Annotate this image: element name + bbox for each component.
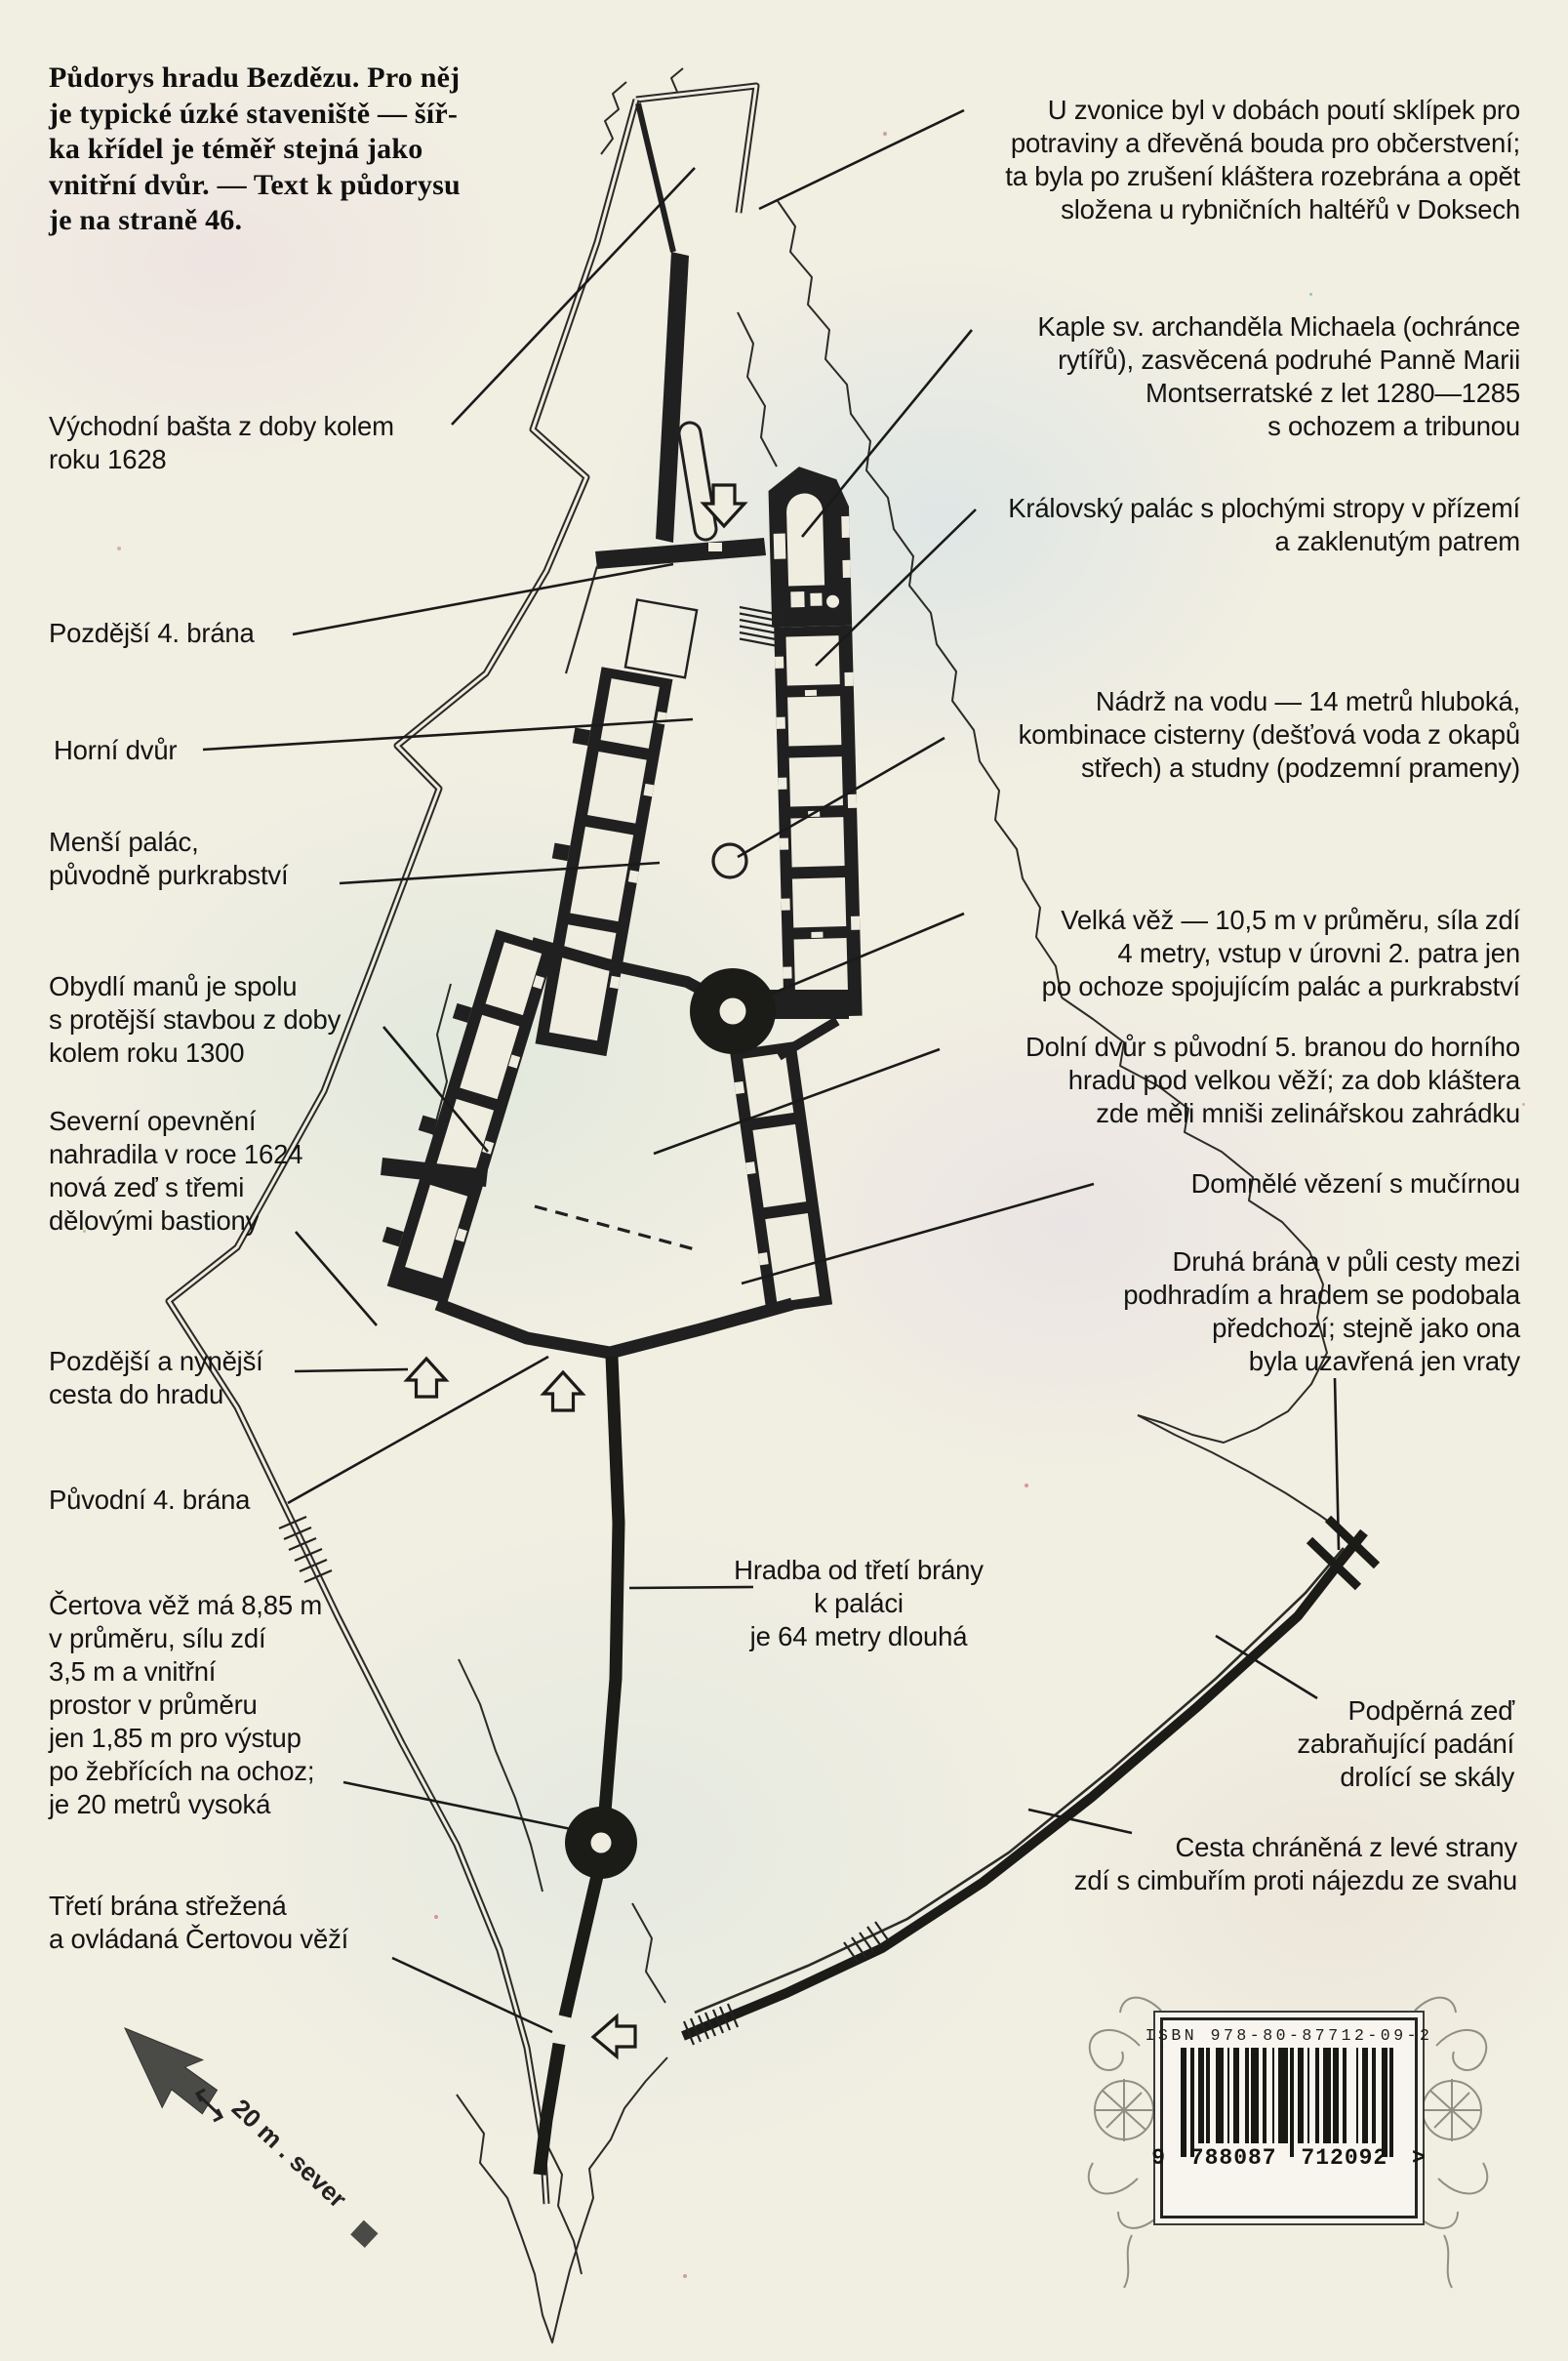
- great-tower: [690, 968, 776, 1054]
- leader-severni-opevneni: [296, 1232, 377, 1325]
- label-nadrz: Nádrž na vodu — 14 metrů hluboká, kombin…: [1019, 685, 1520, 785]
- label-u-zvonice: U zvonice byl v dobách poutí sklípek pro…: [1005, 94, 1520, 226]
- label-certova-vez: Čertova věž má 8,85 m v průměru, sílu zd…: [49, 1589, 322, 1821]
- scanned-book-page: 20 m . sever Půdorys hradu Bezdězu. Pro …: [0, 0, 1568, 2361]
- chapel-and-royal-palace: [768, 466, 863, 1018]
- intro-caption: Půdorys hradu Bezdězu. Pro něj je typick…: [49, 61, 537, 239]
- label-domnele-vezeni: Domnělé vězení s mučírnou: [1191, 1167, 1520, 1201]
- leader-pozdejsi-4-brana: [293, 564, 673, 634]
- smaller-palace-range: [518, 592, 697, 1058]
- label-podperna-zed: Podpěrná zeď zabraňující padání drolící …: [1297, 1694, 1514, 1794]
- label-obydli-manu: Obydlí manů je spolu s protější stavbou …: [49, 970, 341, 1070]
- label-dolni-dvur: Dolní dvůr s původní 5. branou do horníh…: [1025, 1031, 1520, 1130]
- bastion-west-wall: [638, 103, 673, 252]
- entrance-arrow-up2-icon: [543, 1372, 583, 1410]
- fourth-gate-opening: [708, 543, 722, 551]
- corridor-west-wall: [656, 252, 689, 543]
- paper-speck: [117, 547, 121, 550]
- barcode-bars: [1181, 2048, 1397, 2159]
- leader-certova-vez: [343, 1782, 581, 1831]
- curtain-wall-lower: [565, 1876, 597, 2016]
- compass-group: 20 m . sever: [103, 2006, 379, 2248]
- entrance-arrow-left-icon: [593, 2016, 635, 2056]
- label-horni-dvur: Horní dvůr: [54, 734, 177, 767]
- label-kralovsky-palac: Královský palác s plochými stropy v příz…: [1008, 492, 1520, 558]
- palace-eastrange-wall: [779, 1021, 837, 1056]
- paper-speck: [434, 1915, 438, 1919]
- label-vychodni-basta: Východní bašta z doby kolem roku 1628: [49, 410, 394, 476]
- devils-tower: [565, 1807, 637, 1879]
- courtyard-dashed-line: [535, 1206, 695, 1249]
- fourth-gate-wall: [595, 538, 766, 569]
- paper-speck: [883, 132, 887, 136]
- compass-north-arrow-icon: [103, 2006, 229, 2131]
- label-mensi-palac: Menší palác, původně purkrabství: [49, 826, 288, 892]
- label-kaple: Kaple sv. archanděla Michaela (ochránce …: [1037, 310, 1520, 443]
- paper-speck: [1522, 1103, 1525, 1106]
- entrance-arrow-up-icon: [407, 1359, 446, 1397]
- leader-treti-brana: [392, 1958, 552, 2032]
- barcode-frame: ISBN 978-80-87712-09-2 9 788087 712092 >: [1160, 2017, 1418, 2219]
- label-severni-opevneni: Severní opevnění nahradila v roce 1624 n…: [49, 1105, 302, 1238]
- cistern-circle: [713, 844, 746, 877]
- manor-range: [370, 924, 555, 1304]
- label-treti-brana: Třetí brána střežená a ovládaná Čertovou…: [49, 1890, 348, 1956]
- barcode-isbn-text: ISBN 978-80-87712-09-2: [1146, 2026, 1433, 2045]
- barcode-digits: 9 788087 712092 >: [1151, 2145, 1427, 2171]
- scale-end-square: [350, 2220, 378, 2248]
- curtain-wall-below-gate: [540, 2044, 559, 2175]
- east-bastion-loop: [690, 433, 705, 529]
- courtyard-south-wall: [437, 1304, 792, 1353]
- label-pozdejsi-4-brana: Pozdější 4. brána: [49, 617, 255, 650]
- leader-pozdejsi-cesta: [295, 1369, 408, 1371]
- label-puvodni-4-brana: Původní 4. brána: [49, 1484, 250, 1517]
- label-velka-vez: Velká věž — 10,5 m v průměru, síla zdí 4…: [1042, 904, 1520, 1003]
- label-druha-brana: Druhá brána v půli cesty mezi podhradím …: [1123, 1245, 1520, 1378]
- label-cesta-chranena: Cesta chráněná z levé strany zdí s cimbu…: [1074, 1831, 1517, 1897]
- label-pozdejsi-cesta: Pozdější a nynější cesta do hradu: [49, 1345, 263, 1411]
- paper-speck: [1309, 293, 1312, 296]
- paper-speck: [1025, 1484, 1028, 1487]
- label-hradba: Hradba od třetí brány k paláci je 64 met…: [644, 1554, 1073, 1653]
- curtain-wall-upper: [605, 1357, 619, 1811]
- scale-text: 20 m . sever: [226, 2093, 352, 2213]
- barcode: ISBN 978-80-87712-09-2 9 788087 712092 >: [1153, 2011, 1425, 2225]
- leader-u-zvonice: [759, 110, 964, 209]
- paper-speck: [683, 2274, 687, 2278]
